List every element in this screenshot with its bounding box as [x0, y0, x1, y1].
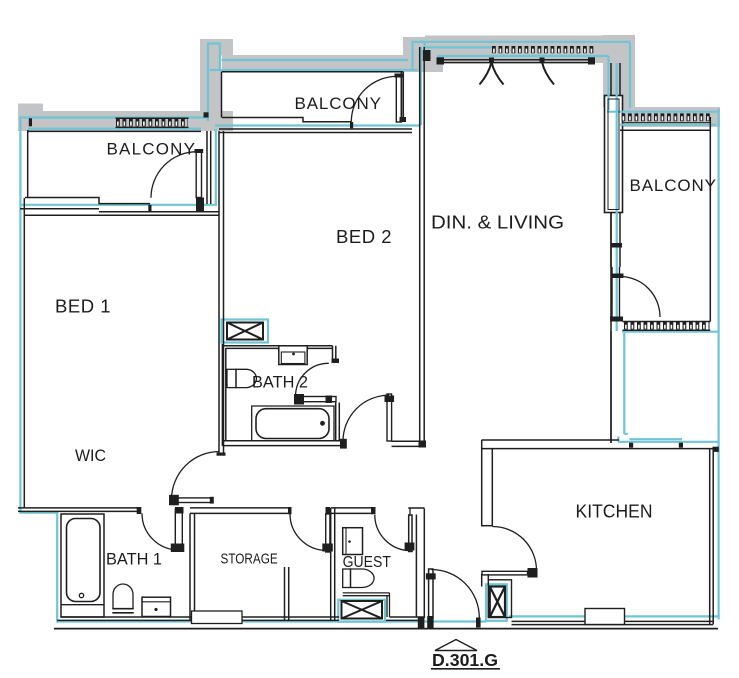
svg-text:WIC: WIC	[75, 447, 106, 465]
svg-text:DIN. & LIVING: DIN. & LIVING	[431, 212, 564, 233]
svg-text:D.301.G: D.301.G	[432, 650, 498, 670]
svg-text:BATH 2: BATH 2	[252, 373, 308, 392]
svg-text:BATH 1: BATH 1	[106, 550, 162, 569]
svg-text:BALCONY: BALCONY	[630, 176, 717, 195]
svg-text:BED 1: BED 1	[55, 296, 111, 317]
svg-text:GUEST: GUEST	[343, 554, 392, 571]
svg-text:BED 2: BED 2	[336, 226, 392, 247]
svg-text:KITCHEN: KITCHEN	[576, 501, 653, 522]
svg-text:BALCONY: BALCONY	[107, 140, 196, 159]
svg-text:STORAGE: STORAGE	[221, 551, 278, 568]
svg-text:BALCONY: BALCONY	[295, 94, 382, 113]
